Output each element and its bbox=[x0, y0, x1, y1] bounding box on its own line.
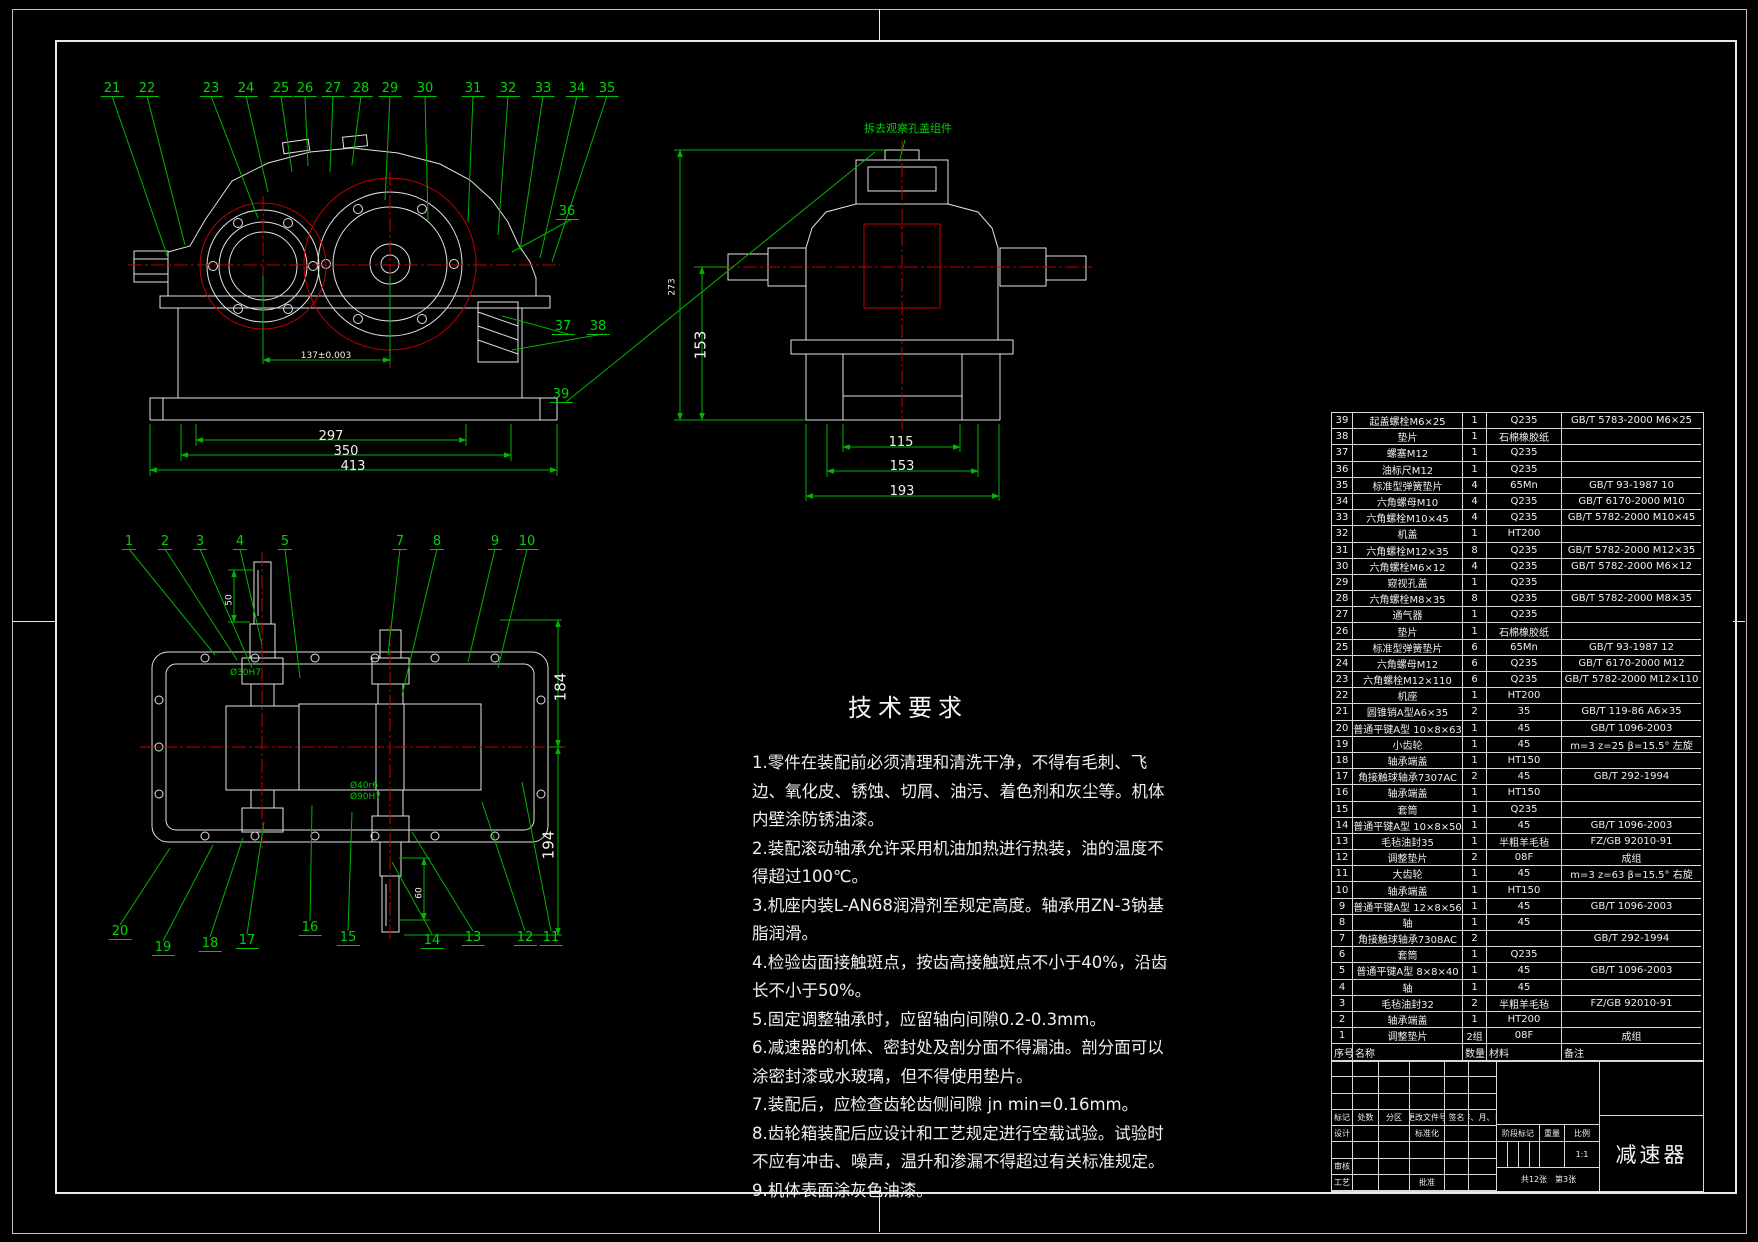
balloon-29: 29 bbox=[379, 82, 402, 97]
tech-req-item: 7.装配后，应检查齿轮齿侧间隙 jn min=0.16mm。 bbox=[752, 1091, 1170, 1120]
dim-273: 273 bbox=[666, 278, 680, 295]
tech-req-list: 1.零件在装配前必须清理和清洗干净，不得有毛刺、飞边、氧化皮、锈蚀、切屑、油污、… bbox=[752, 749, 1170, 1205]
table-row: 2轴承端盖1HT200 bbox=[1332, 1012, 1703, 1028]
table-row: 36油标尺M121Q235 bbox=[1332, 462, 1703, 478]
dim-184: 184 bbox=[553, 673, 567, 702]
balloon-9: 9 bbox=[488, 535, 502, 550]
tech-req-item: 4.检验齿面接触斑点，按齿高接触斑点不小于40%，沿齿长不小于50%。 bbox=[752, 949, 1170, 1006]
balloon-3: 3 bbox=[193, 535, 207, 550]
label-mark: 标记 bbox=[1332, 1110, 1353, 1126]
table-row: 24六角螺母M126Q235GB/T 6170-2000 M12 bbox=[1332, 656, 1703, 672]
balloon-7: 7 bbox=[393, 535, 407, 550]
table-row: 30六角螺栓M6×124Q235GB/T 5782-2000 M6×12 bbox=[1332, 559, 1703, 575]
balloon-24: 24 bbox=[235, 82, 258, 97]
remove-cover-note: 拆去观察孔盖组件 bbox=[864, 120, 952, 136]
table-row: 16轴承端盖1HT150 bbox=[1332, 785, 1703, 801]
table-row: 25标准型弹簧垫片665MnGB/T 93-1987 12 bbox=[1332, 640, 1703, 656]
balloon-21: 21 bbox=[101, 82, 124, 97]
drawing-sheet: 21 22 23 24 25 26 27 28 29 30 31 32 33 3… bbox=[0, 0, 1758, 1242]
tech-req-item: 6.减速器的机体、密封处及剖分面不得漏油。剖分面可以涂密封漆或水玻璃，但不得使用… bbox=[752, 1034, 1170, 1091]
table-row: 10轴承端盖1HT150 bbox=[1332, 882, 1703, 898]
dim-153w: 153 bbox=[890, 460, 915, 473]
col-header-material: 材料 bbox=[1487, 1044, 1562, 1060]
table-row: 4轴145 bbox=[1332, 980, 1703, 996]
table-row: 26垫片1石棉橡胶纸 bbox=[1332, 623, 1703, 639]
balloon-37: 37 bbox=[552, 320, 575, 335]
balloon-22: 22 bbox=[136, 82, 159, 97]
table-row: 20普通平键A型 10×8×63145GB/T 1096-2003 bbox=[1332, 721, 1703, 737]
balloon-11: 11 bbox=[540, 931, 563, 946]
table-row: 21圆锥销A型A6×35235GB/T 119-86 A6×35 bbox=[1332, 704, 1703, 720]
stage-empty-area bbox=[1497, 1061, 1600, 1125]
table-row: 23六角螺栓M12×1106Q235GB/T 5782-2000 M12×110 bbox=[1332, 672, 1703, 688]
label-process: 工艺 bbox=[1332, 1175, 1353, 1191]
balloon-15: 15 bbox=[337, 931, 360, 946]
tech-req-item: 1.零件在装配前必须清理和清洗干净，不得有毛刺、飞边、氧化皮、锈蚀、切屑、油污、… bbox=[752, 749, 1170, 835]
table-row: 14普通平键A型 10×8×50145GB/T 1096-2003 bbox=[1332, 818, 1703, 834]
table-row: 28六角螺栓M8×358Q235GB/T 5782-2000 M8×35 bbox=[1332, 591, 1703, 607]
parts-table: 39起盖螺栓M6×251Q235GB/T 5783-2000 M6×2538垫片… bbox=[1331, 412, 1704, 1062]
table-header: 序号 名称 数量 材料 备注 bbox=[1332, 1044, 1703, 1060]
dim-297: 297 bbox=[319, 430, 344, 443]
front-view bbox=[128, 135, 560, 476]
table-row: 13毛毡油封351半粗羊毛毡FZ/GB 92010-91 bbox=[1332, 834, 1703, 850]
balloon-35: 35 bbox=[596, 82, 619, 97]
table-row: 35标准型弹簧垫片465MnGB/T 93-1987 10 bbox=[1332, 478, 1703, 494]
balloon-10: 10 bbox=[516, 535, 539, 550]
table-row: 29窥视孔盖1Q235 bbox=[1332, 575, 1703, 591]
balloon-14: 14 bbox=[421, 934, 444, 949]
label-weight: 重量 bbox=[1540, 1125, 1565, 1142]
table-row: 37螺塞M121Q235 bbox=[1332, 445, 1703, 461]
part-name-block: 减速器 bbox=[1600, 1061, 1703, 1191]
dim-413: 413 bbox=[341, 460, 366, 473]
balloon-31: 31 bbox=[462, 82, 485, 97]
balloon-33: 33 bbox=[532, 82, 555, 97]
dim-194: 194 bbox=[541, 831, 555, 860]
balloon-32: 32 bbox=[497, 82, 520, 97]
table-row: 39起盖螺栓M6×251Q235GB/T 5783-2000 M6×25 bbox=[1332, 413, 1703, 429]
balloon-20: 20 bbox=[109, 925, 132, 940]
balloon-1: 1 bbox=[122, 535, 136, 550]
table-row: 34六角螺母M104Q235GB/T 6170-2000 M10 bbox=[1332, 494, 1703, 510]
table-row: 19小齿轮145m=3 z=25 β=15.5° 左旋 bbox=[1332, 737, 1703, 753]
table-row: 6套筒1Q235 bbox=[1332, 947, 1703, 963]
plan-section-view bbox=[140, 552, 566, 940]
balloon-19: 19 bbox=[152, 941, 175, 956]
dim-center-distance: 137±0.003 bbox=[301, 350, 351, 363]
tech-req-item: 9.机体表面涂灰色油漆。 bbox=[752, 1177, 1170, 1206]
table-row: 11大齿轮145m=3 z=63 β=15.5° 右旋 bbox=[1332, 866, 1703, 882]
sheets-total: 共12张 bbox=[1521, 1174, 1547, 1185]
table-row: 15套筒1Q235 bbox=[1332, 802, 1703, 818]
balloon-38: 38 bbox=[587, 320, 610, 335]
table-row: 18轴承端盖1HT150 bbox=[1332, 753, 1703, 769]
balloon-5: 5 bbox=[278, 535, 292, 550]
label-standardize: 标准化 bbox=[1410, 1126, 1445, 1142]
table-row: 27通气器1Q235 bbox=[1332, 607, 1703, 623]
label-approve: 批准 bbox=[1410, 1175, 1445, 1191]
tech-req-item: 3.机座内装L-AN68润滑剂至规定高度。轴承用ZN-3钠基脂润滑。 bbox=[752, 892, 1170, 949]
balloon-25: 25 bbox=[270, 82, 293, 97]
col-header-name: 名称 bbox=[1353, 1044, 1463, 1060]
label-design: 设计 bbox=[1332, 1126, 1353, 1142]
balloon-39: 39 bbox=[550, 388, 573, 403]
balloon-12: 12 bbox=[514, 931, 537, 946]
tech-req-item: 8.齿轮箱装配后应设计和工艺规定进行空载试验。试验时不应有冲击、噪声，温升和渗漏… bbox=[752, 1120, 1170, 1177]
side-view bbox=[674, 140, 1092, 501]
balloon-28: 28 bbox=[350, 82, 373, 97]
balloon-27: 27 bbox=[322, 82, 345, 97]
dim-115: 115 bbox=[889, 436, 914, 449]
balloon-16: 16 bbox=[299, 921, 322, 936]
balloon-18: 18 bbox=[199, 937, 222, 952]
scale-value: 1:1 bbox=[1565, 1141, 1600, 1168]
col-header-qty: 数量 bbox=[1463, 1044, 1487, 1060]
col-header-seq: 序号 bbox=[1332, 1044, 1353, 1060]
parts-table-rows: 39起盖螺栓M6×251Q235GB/T 5783-2000 M6×2538垫片… bbox=[1332, 413, 1703, 1044]
part-name: 减速器 bbox=[1600, 1116, 1703, 1191]
table-row: 9普通平键A型 12×8×56145GB/T 1096-2003 bbox=[1332, 899, 1703, 915]
balloon-2: 2 bbox=[158, 535, 172, 550]
label-zone: 分区 bbox=[1379, 1110, 1410, 1126]
label-check: 审核 bbox=[1332, 1159, 1353, 1175]
balloon-26: 26 bbox=[294, 82, 317, 97]
balloon-17: 17 bbox=[236, 934, 259, 949]
label-doc-no: 更改文件号 bbox=[1410, 1110, 1445, 1126]
balloon-8: 8 bbox=[430, 535, 444, 550]
balloon-36: 36 bbox=[556, 205, 579, 220]
label-count: 处数 bbox=[1353, 1110, 1379, 1126]
title-block: 标记 处数 分区 更改文件号 签名 年、月、日 设计 标准化 审核 工艺 批准 … bbox=[1331, 1060, 1704, 1192]
tech-req-item: 5.固定调整轴承时，应留轴向间隙0.2-0.3mm。 bbox=[752, 1006, 1170, 1035]
sheet-number: 第3张 bbox=[1555, 1174, 1576, 1185]
dim-50: 50 bbox=[223, 594, 237, 605]
balloon-34: 34 bbox=[566, 82, 589, 97]
technical-requirements: 技术要求 1.零件在装配前必须清理和清洗干净，不得有毛刺、飞边、氧化皮、锈蚀、切… bbox=[752, 688, 1170, 1205]
tech-req-title: 技术要求 bbox=[848, 688, 1170, 723]
table-row: 38垫片1石棉橡胶纸 bbox=[1332, 429, 1703, 445]
table-row: 33六角螺栓M10×454Q235GB/T 5782-2000 M10×45 bbox=[1332, 510, 1703, 526]
table-row: 1调整垫片2组08F成组 bbox=[1332, 1028, 1703, 1044]
col-header-remark: 备注 bbox=[1562, 1044, 1701, 1060]
table-row: 12调整垫片208F成组 bbox=[1332, 850, 1703, 866]
balloon-23: 23 bbox=[200, 82, 223, 97]
balloon-4: 4 bbox=[233, 535, 247, 550]
table-row: 8轴145 bbox=[1332, 915, 1703, 931]
label-stage: 阶段标记 bbox=[1497, 1125, 1540, 1142]
balloon-30: 30 bbox=[414, 82, 437, 97]
dim-193: 193 bbox=[890, 485, 915, 498]
revision-grid: 标记 处数 分区 更改文件号 签名 年、月、日 设计 标准化 审核 工艺 批准 bbox=[1332, 1061, 1497, 1191]
fit-label-30H7: Ø30H7 bbox=[230, 668, 261, 678]
table-row: 32机盖1HT200 bbox=[1332, 526, 1703, 542]
stage-block: 阶段标记 重量 比例 1:1 共12张 第3张 bbox=[1497, 1061, 1600, 1191]
dim-60: 60 bbox=[413, 887, 427, 898]
table-row: 22机座1HT200 bbox=[1332, 688, 1703, 704]
balloon-13: 13 bbox=[462, 931, 485, 946]
part-name-empty-area bbox=[1600, 1061, 1703, 1116]
table-row: 17角接触球轴承7307AC245GB/T 292-1994 bbox=[1332, 769, 1703, 785]
table-row: 5普通平键A型 8×8×40145GB/T 1096-2003 bbox=[1332, 963, 1703, 979]
fit-label-40r6: Ø40r6 bbox=[350, 781, 378, 791]
dim-350: 350 bbox=[334, 445, 359, 458]
fit-label-90H7: Ø90H7 bbox=[350, 792, 381, 802]
dim-153h: 153 bbox=[693, 331, 707, 360]
tech-req-item: 2.装配滚动轴承允许采用机油加热进行热装，油的温度不得超过100℃。 bbox=[752, 835, 1170, 892]
label-scale: 比例 bbox=[1565, 1125, 1600, 1142]
label-date: 年、月、日 bbox=[1469, 1110, 1497, 1126]
table-row: 3毛毡油封322半粗羊毛毡FZ/GB 92010-91 bbox=[1332, 996, 1703, 1012]
table-row: 7角接触球轴承7308AC2GB/T 292-1994 bbox=[1332, 931, 1703, 947]
table-row: 31六角螺栓M12×358Q235GB/T 5782-2000 M12×35 bbox=[1332, 543, 1703, 559]
sheet-info: 共12张 第3张 bbox=[1497, 1167, 1600, 1191]
label-sign: 签名 bbox=[1445, 1110, 1469, 1126]
